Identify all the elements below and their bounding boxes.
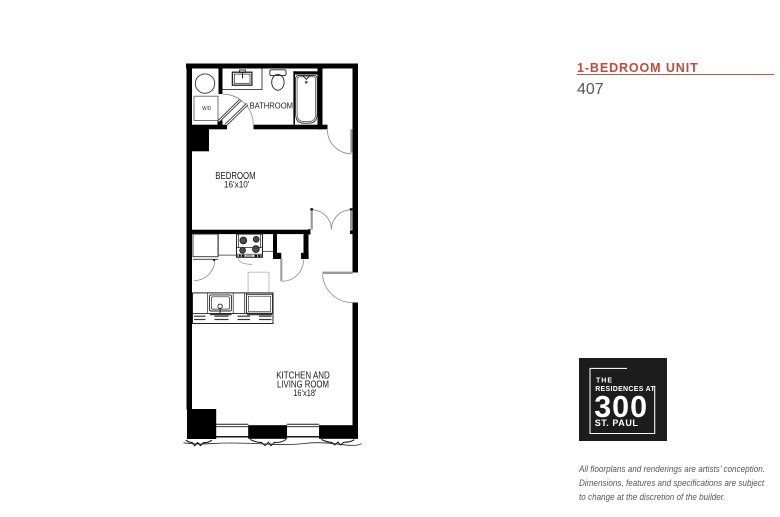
svg-text:16'x10': 16'x10' [224,180,250,191]
svg-text:BATHROOM: BATHROOM [250,102,294,111]
svg-text:16'x18': 16'x18' [293,388,316,399]
svg-text:THE: THE [596,378,613,385]
svg-text:ST. PAUL: ST. PAUL [595,418,639,428]
svg-text:W/D: W/D [202,106,211,112]
